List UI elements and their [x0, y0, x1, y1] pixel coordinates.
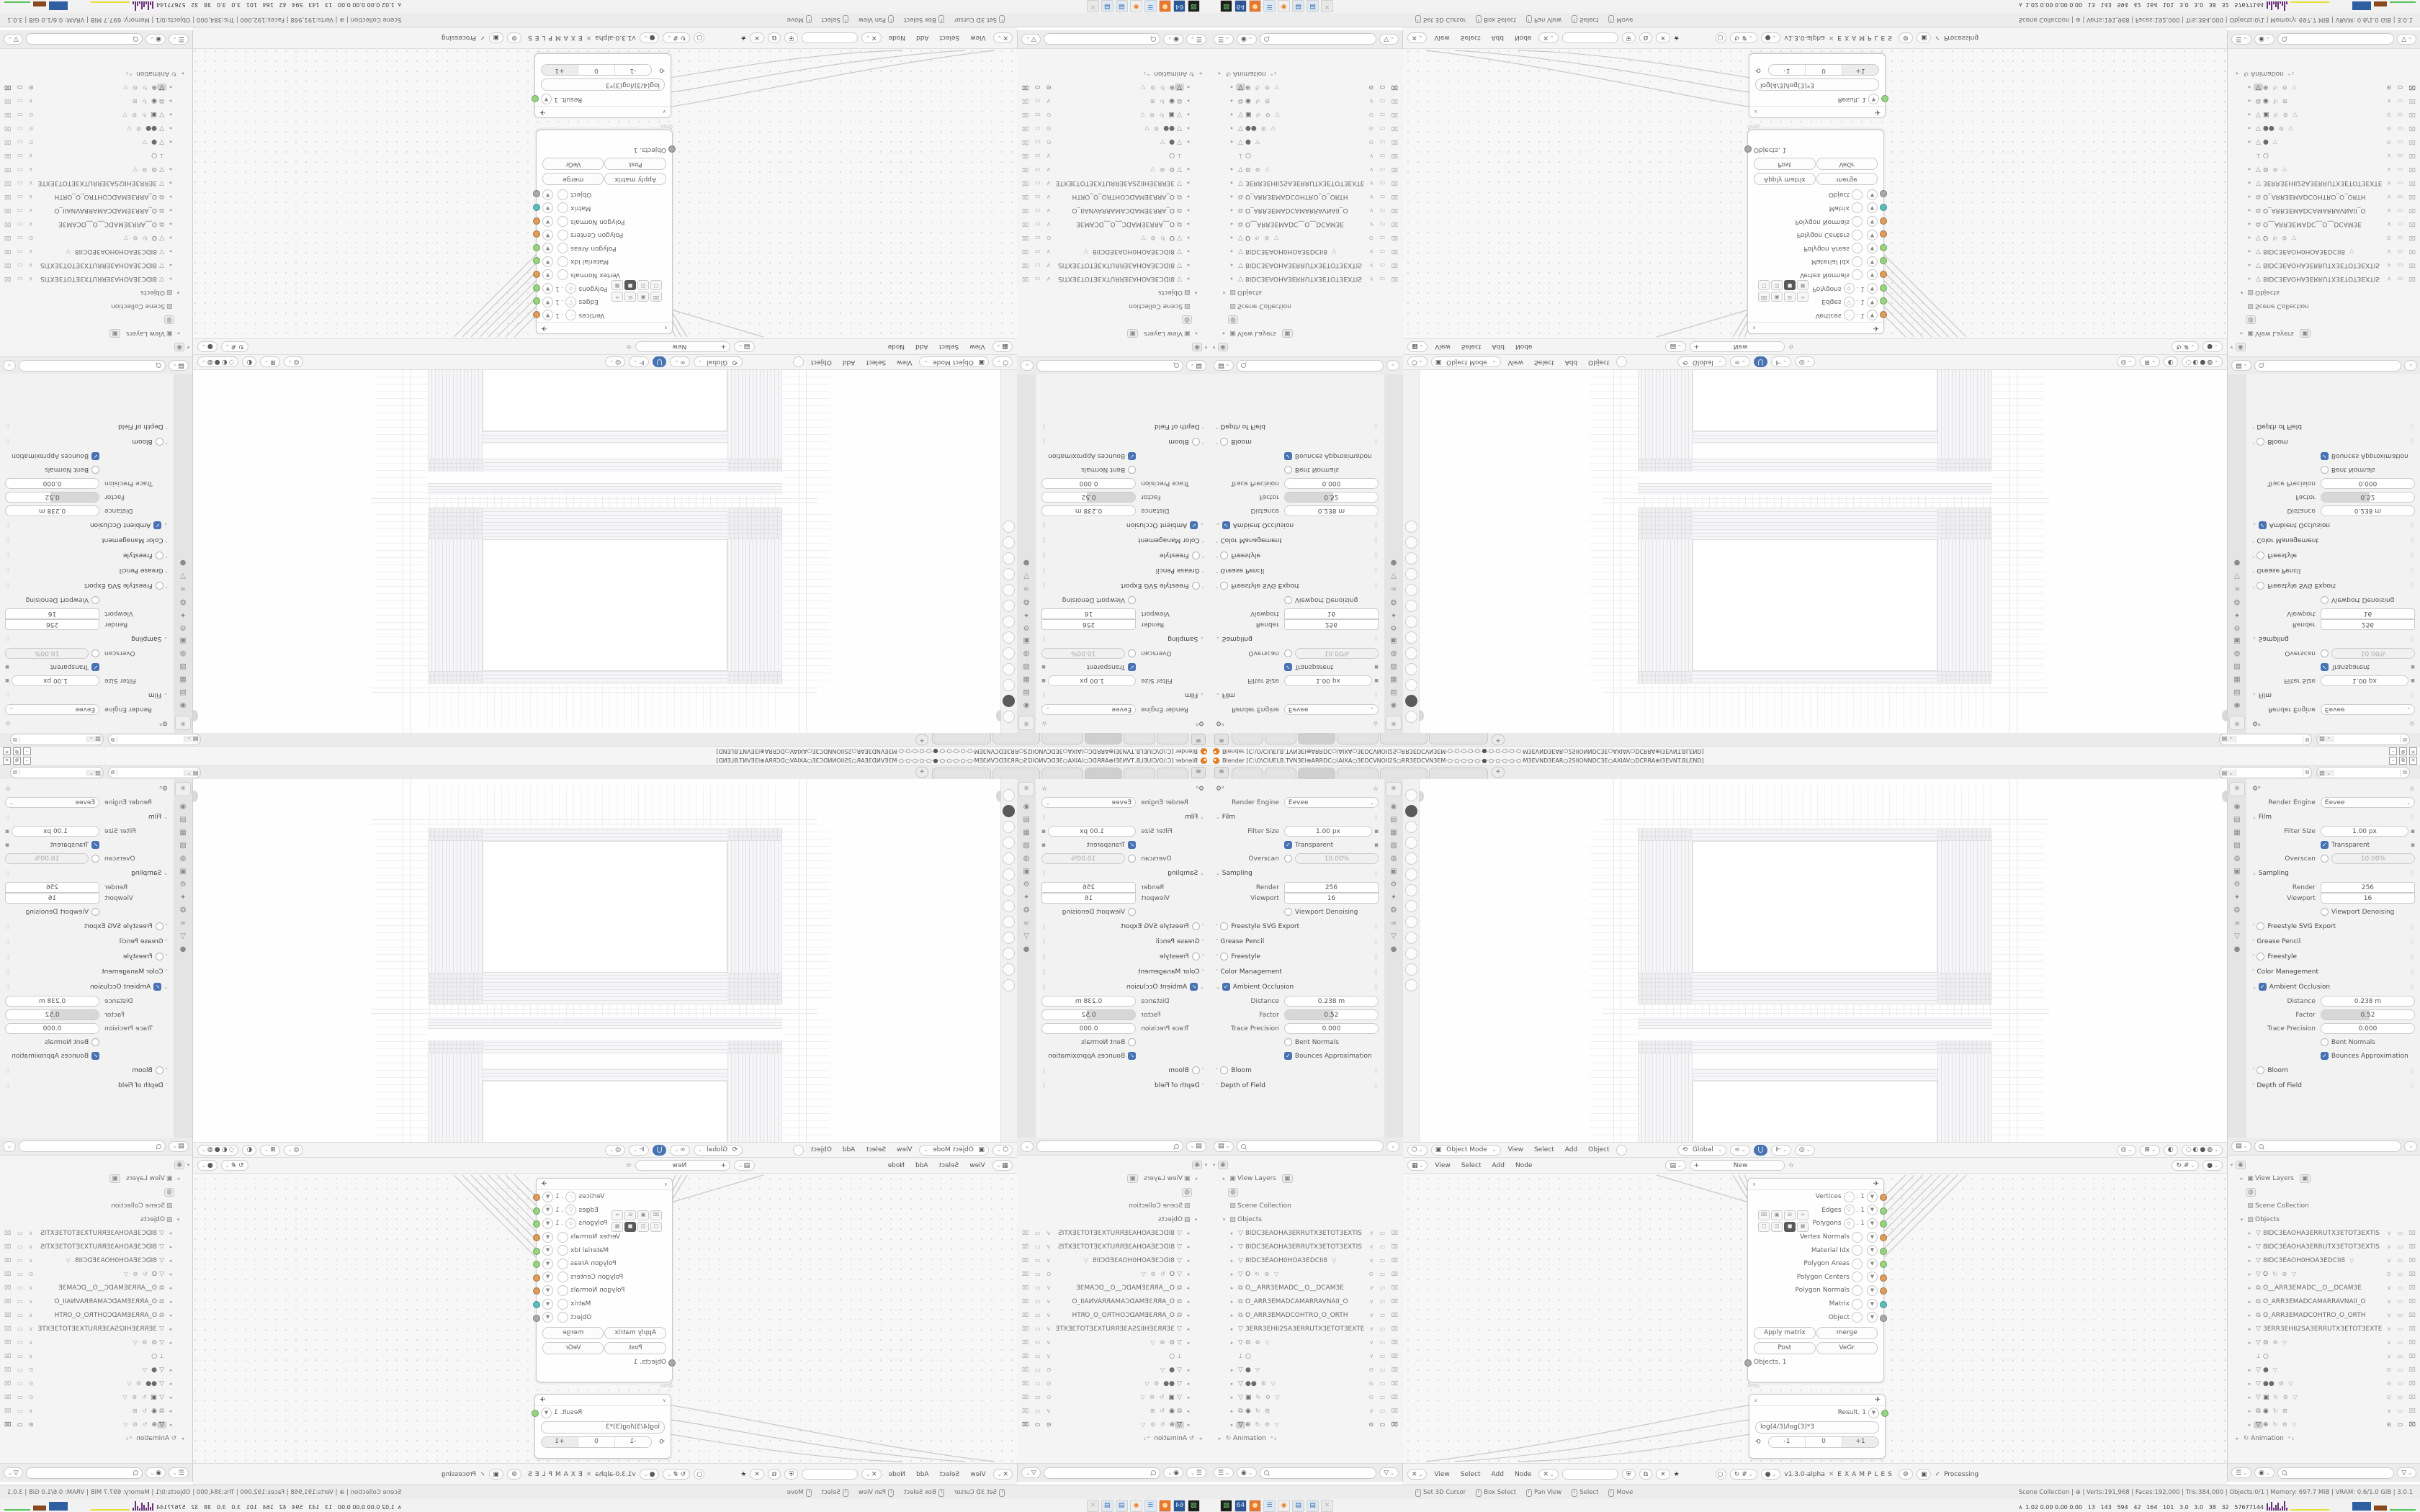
outliner-object-row[interactable]: ▸⧉O_ARR3EMADCOHTRO_O_ORTH∨ ▭ ⌧ [1210, 190, 1403, 204]
sampling-section[interactable]: Sampling [1222, 636, 1252, 643]
node-output-socket[interactable]: Polygon Centers▼ [537, 228, 672, 242]
tool-add-cube[interactable] [1003, 568, 1016, 580]
sampling-section[interactable]: Sampling [1168, 870, 1198, 877]
outliner-object-row[interactable]: ▸▽3ERR3EHII2SA3ERRUTX3ETOT3EXTE∨ ▭ ⌧ [1210, 1322, 1403, 1336]
socket-dropdown[interactable]: ▼ [542, 1218, 553, 1229]
world-row[interactable]: ◍ [2228, 313, 2420, 327]
freestyle-svg-toggle[interactable] [1192, 922, 1200, 930]
overlay-dropdown[interactable]: ●⌄ [197, 1160, 218, 1171]
circle-toggle[interactable]: ○ [694, 32, 704, 43]
properties-tab-icon[interactable]: ▤ [176, 685, 190, 698]
new-tree-button[interactable]: +New [1690, 341, 1785, 352]
workspace-tab[interactable] [992, 733, 1040, 744]
properties-tab-icon[interactable]: ✦ [1019, 608, 1034, 621]
bent-normals-toggle[interactable] [1128, 1038, 1136, 1046]
filter-size-field[interactable]: 1.00 px [2321, 675, 2408, 686]
maximize-button[interactable]: ⧉ [2399, 757, 2407, 765]
workspace-tab[interactable] [1429, 733, 1488, 744]
viewport-denoising-toggle[interactable] [91, 908, 99, 916]
freestyle-svg-toggle[interactable] [2257, 582, 2264, 590]
outliner-search-input[interactable] [1036, 1140, 1183, 1152]
view-layers-row[interactable]: ▸▣View Layers▣ [2228, 1171, 2420, 1185]
tool-active[interactable] [1405, 695, 1417, 707]
tree-name-field[interactable] [1562, 1469, 1618, 1480]
outliner-object-row[interactable]: ▸▽3ERR3EHII2SA3ERRUTX3ETOT3EXTE∨ ▭ ⌧ [1017, 1322, 1210, 1336]
filter-type-dropdown[interactable]: ◉⌄ [2254, 34, 2275, 45]
bloom-section[interactable]: Bloom [2267, 1067, 2287, 1074]
tree-name-field[interactable] [1562, 32, 1618, 43]
film-section[interactable]: Film [1185, 692, 1198, 699]
properties-tab-icon[interactable]: ∞ [1019, 582, 1034, 595]
vegr-button[interactable]: VeGr [542, 1342, 604, 1354]
ao-checkbox[interactable]: ✓ [153, 521, 161, 529]
viewlayer-selector[interactable]: ▧ ⌄ ⧉ [10, 734, 104, 745]
taskbar-app-icon[interactable]: ◉ [1278, 1, 1290, 13]
scene-selector[interactable]: ▤ ⌄ ⧉ [108, 734, 202, 745]
film-section[interactable]: Film [1222, 814, 1235, 821]
menu-add[interactable]: Add [1488, 1471, 1507, 1478]
viewport-samples-field[interactable]: 16 [1041, 893, 1136, 904]
examples-menu[interactable]: EXAMPLES [525, 1471, 583, 1478]
pin-icon[interactable]: ☆ [626, 1162, 632, 1169]
tool-rotate[interactable] [1003, 647, 1016, 660]
snap-node-dropdown[interactable]: ↻ #⌄ [2172, 341, 2199, 352]
outliner-search-input[interactable] [1237, 360, 1384, 372]
outliner-object-row[interactable]: ▸⧉◉↻ ⊞∨ ▭ ⌧ [1210, 94, 1403, 108]
socket-dropdown[interactable]: ▼ [542, 202, 553, 213]
outliner-object-row[interactable]: ▸▽3ERR3EHII2SA3ERRUTX3ETOT3EXTE∨ ▭ ⌧ [1017, 176, 1210, 190]
outliner-object-row[interactable]: ▸⧉◉↻ ⊞∨ ▭ ⌧ [1017, 1404, 1210, 1418]
menu-add[interactable]: Add [1489, 1162, 1508, 1169]
ao-trace-precision-field[interactable]: 0.000 [1041, 1023, 1136, 1034]
menu-add[interactable]: Add [912, 343, 931, 351]
workspace-tab[interactable] [1265, 768, 1296, 779]
socket-dropdown[interactable]: ▼ [542, 1312, 553, 1323]
workspace-tab-active[interactable] [1298, 768, 1335, 779]
node-output-socket[interactable]: Result. 1▼ [1749, 92, 1885, 106]
menu-add[interactable]: Add [1488, 35, 1507, 42]
socket-dropdown[interactable]: ▼ [542, 256, 553, 267]
sampling-section[interactable]: Sampling [1222, 870, 1252, 877]
step-buttons[interactable]: -10+1 [541, 1436, 652, 1448]
node-output-socket[interactable]: Polygon Areas▼ [1748, 1257, 1883, 1271]
render-engine-dropdown[interactable]: Eevee⌄ [2321, 797, 2415, 808]
tree-type-dropdown[interactable]: ▤⌄ [1665, 1160, 1685, 1171]
outliner-object-row[interactable]: ▸⧉O_ARR3EMADCAMARRAVNAII_O∨ ▭ ⌧ [2228, 204, 2420, 217]
outliner-object-row[interactable]: ▸▽⊕↻ ⚙ ▽⊙ ▭ ⌧ [0, 1418, 192, 1431]
workspace-tab[interactable] [1157, 733, 1188, 744]
tool-rotate[interactable] [1405, 852, 1417, 865]
ao-factor-slider[interactable]: 0.52 [1041, 492, 1136, 503]
overscan-field[interactable]: 10.00% [1295, 853, 1379, 864]
workspace-tab-active[interactable] [1085, 768, 1122, 779]
mode-dropdown[interactable]: ▣ Object Mode ⌄ [919, 357, 989, 368]
taskbar-app-icon[interactable]: ☰ [1263, 1500, 1276, 1512]
properties-tab-icon[interactable]: ❂ [1019, 904, 1034, 917]
menu-add[interactable]: Add [1561, 1146, 1581, 1153]
properties-tab-icon[interactable]: ● [1019, 556, 1034, 569]
properties-tab-icon[interactable]: ▽ [1019, 569, 1034, 582]
close-button[interactable]: ✕ [2409, 757, 2417, 765]
properties-tab-icon[interactable]: ✦ [2230, 608, 2244, 621]
filter-size-field[interactable]: 1.00 px [1284, 826, 1372, 837]
ao-factor-slider[interactable]: 0.52 [2321, 492, 2415, 503]
tree-icon-dropdown[interactable]: ✕⌄ [1407, 1469, 1427, 1480]
grease-pencil-section[interactable]: Grease Pencil [1220, 567, 1264, 575]
taskbar-app-icon[interactable]: ▤ [1307, 1, 1319, 13]
socket-dropdown[interactable]: ▼ [1867, 283, 1878, 294]
properties-tab-icon[interactable]: ◉ [1386, 698, 1401, 711]
taskbar-app-icon[interactable]: ▤ [1101, 1500, 1113, 1512]
overscan-field[interactable]: 10.00% [5, 648, 89, 659]
properties-tab-icon[interactable]: ⚙ [1019, 621, 1034, 634]
editor-type-icon[interactable]: ⚙ᵒ [2252, 786, 2261, 793]
properties-tab-icon[interactable]: ❂ [2230, 595, 2244, 608]
properties-tab-icon[interactable]: ▤ [1386, 685, 1401, 698]
tool-transform[interactable] [1405, 884, 1417, 896]
filter-type-dropdown[interactable]: ◉⌄ [1163, 34, 1183, 45]
taskbar-app-icon[interactable]: ● [1159, 1, 1171, 13]
properties-tab-icon[interactable]: ▣ [2230, 865, 2244, 878]
tool-move[interactable] [1003, 837, 1016, 849]
freestyle-svg-section[interactable]: Freestyle SVG Export [2267, 582, 2336, 590]
tool-extra2[interactable] [1003, 963, 1016, 976]
properties-tab-icon[interactable]: ● [2230, 556, 2244, 569]
outliner-filter-dropdown[interactable]: ⌄ [1386, 1141, 1399, 1152]
viewport-samples-field[interactable]: 16 [1284, 608, 1379, 619]
ao-distance-field[interactable]: 0.238 m [5, 505, 99, 516]
properties-tab-icon[interactable]: ✦ [176, 891, 190, 904]
socket-dropdown[interactable]: ▼ [1867, 216, 1878, 227]
properties-tab-icon[interactable]: ▽ [1386, 930, 1401, 943]
menu-select[interactable]: Select [935, 343, 962, 351]
viewport-denoising-toggle[interactable] [1128, 908, 1136, 916]
properties-tab-icon[interactable]: ▤ [176, 814, 190, 827]
view-layers-row[interactable]: ▸▣View Layers▣ [0, 327, 192, 341]
outliner-filter-dropdown[interactable]: ⌄ [1021, 1141, 1034, 1152]
properties-tab-icon[interactable]: ▦ [176, 672, 190, 685]
taskbar-app-icon[interactable]: 64 [1173, 1, 1186, 13]
viewlayer-selector[interactable]: ▧ ⌄ ⧉ [10, 767, 104, 778]
node-output-socket[interactable]: Matrix▼ [537, 1297, 672, 1311]
bloom-section[interactable]: Bloom [2267, 438, 2287, 446]
outliner-display-mode-dropdown[interactable]: ▤⌄ [1186, 361, 1206, 372]
formula-node[interactable]: ∨✈ Result. 1▼ log(4/3)/log(3)*3 ⟲ -10+1 [534, 53, 671, 118]
search-input[interactable] [26, 1467, 143, 1479]
display-mode-dropdown[interactable]: ☰⌄ [1186, 1467, 1206, 1478]
tool-tab-icon[interactable]: ✳ [1018, 716, 1034, 730]
freestyle-section[interactable]: Freestyle [123, 953, 153, 960]
node-option-button[interactable]: ⊟ [624, 292, 636, 302]
world-row[interactable]: ◍ [1017, 313, 1210, 327]
socket-dropdown[interactable]: ▼ [1867, 189, 1878, 200]
unlink-tree-button[interactable]: ✕ [750, 32, 764, 43]
sidebar-region-handle[interactable] [2222, 791, 2227, 802]
objects-data-node[interactable]: ∨✈ Vertices∴. 1▼ Edges▽. 1▼ Polygons◇. 1… [536, 130, 673, 334]
outliner-object-row[interactable]: ▸▽⊙⚙ ▽∨ ▭ ⌧ [1210, 163, 1403, 176]
socket-dropdown[interactable]: ▼ [1867, 1245, 1878, 1256]
objects-collection-row[interactable]: ▾▧Objects [1017, 286, 1210, 300]
step-buttons[interactable]: -10+1 [541, 64, 652, 76]
filter-size-field[interactable]: 1.00 px [1048, 826, 1136, 837]
sampling-section[interactable]: Sampling [2259, 636, 2289, 643]
film-section[interactable]: Film [148, 814, 161, 821]
scene-collection-row[interactable]: ▧Scene Collection [1017, 1199, 1210, 1212]
properties-tab-icon[interactable]: ⚙ [1019, 878, 1034, 891]
merge-button[interactable]: merge [542, 1327, 604, 1339]
ao-checkbox[interactable]: ✓ [2259, 521, 2267, 529]
properties-tab-icon[interactable]: ⚙ [176, 878, 190, 891]
node-option-button[interactable]: ⌧ [1758, 1210, 1770, 1220]
ambient-occlusion-section[interactable]: Ambient Occlusion [2269, 984, 2330, 991]
properties-tab-icon[interactable]: ◉ [2230, 698, 2244, 711]
color-management-section[interactable]: Color Management [1138, 968, 1200, 976]
menu-select[interactable]: Select [862, 1146, 889, 1153]
step-buttons[interactable]: -10+1 [1768, 64, 1879, 76]
taskbar-app-icon[interactable]: ◉ [1130, 1500, 1142, 1512]
menu-view[interactable]: View [967, 1471, 989, 1478]
viewlayer-selector[interactable]: ▧ ⌄ ⧉ [2316, 734, 2410, 745]
editor-type-icon[interactable]: ⚙ᵒ [1216, 786, 1224, 793]
outliner-search-input[interactable] [2254, 360, 2401, 372]
properties-tab-icon[interactable]: ▤ [2230, 814, 2244, 827]
viewport-3d[interactable] [193, 779, 1017, 1142]
outliner-object-row[interactable]: ▸▽8IDC3EAOHA3ERRUTX3ETOT3EXTIS∨ ▭ ⌧ [1210, 272, 1403, 286]
outliner-object-row[interactable]: ▸▽⊙⚙ ▽∨ ▭ ⌧ [0, 163, 192, 176]
pin-icon[interactable]: ☆ [1041, 719, 1047, 726]
taskbar-app-icon[interactable]: ▤ [1292, 1500, 1304, 1512]
viewport-denoising-toggle[interactable] [2321, 908, 2329, 916]
node-output-socket[interactable]: Polygon Areas▼ [1748, 241, 1883, 255]
sampling-section[interactable]: Sampling [1168, 636, 1198, 643]
overscan-toggle[interactable] [1284, 649, 1292, 657]
editor-type-button[interactable]: ⬡⌄ [992, 357, 1013, 368]
collapse-node-icon[interactable]: ∨ [664, 325, 668, 331]
outliner-object-row[interactable]: ▸▽▣↻ ⚙ ▽⊙ ▭ ⌧ [1210, 1390, 1403, 1404]
outliner-object-row[interactable]: ▸▽●●⚙ ▽⊙ ▭ ⌧ [1017, 1377, 1210, 1390]
freestyle-section[interactable]: Freestyle [1231, 552, 1260, 559]
overlay-dropdown[interactable]: ●⌄ [640, 32, 660, 43]
node-output-socket[interactable]: Matrix▼ [1748, 1297, 1883, 1311]
outliner-filter-dropdown[interactable]: ⌄ [2404, 361, 2417, 372]
bent-normals-toggle[interactable] [91, 1038, 99, 1046]
tool-extra1[interactable] [1405, 552, 1417, 564]
bounces-approx-checkbox[interactable]: ✓ [1128, 452, 1136, 460]
tool-select-box[interactable] [1003, 711, 1016, 723]
scene-selector[interactable]: ▤ ⌄ ⧉ [2219, 734, 2313, 745]
copy-viewlayer-icon[interactable]: ⧉ [11, 736, 20, 743]
new-tree-button[interactable]: +New [635, 1160, 730, 1171]
ambient-occlusion-section[interactable]: Ambient Occlusion [90, 522, 151, 529]
node-output-socket[interactable]: Vertices∴. 1▼ [537, 1190, 672, 1204]
transform-orientation-dropdown[interactable]: ⟲ Global ⌄ [1677, 1145, 1726, 1156]
ao-distance-field[interactable]: 0.238 m [2321, 505, 2415, 516]
socket-dropdown[interactable]: ▼ [1867, 243, 1878, 253]
properties-tab-icon[interactable]: ▧ [1019, 660, 1034, 672]
scene-collection-row[interactable]: ▧Scene Collection [2228, 1199, 2420, 1212]
view-layers-row[interactable]: ▸▣View Layers▣ [0, 1171, 192, 1185]
properties-tab-icon[interactable]: ▦ [1386, 672, 1401, 685]
overscan-toggle[interactable] [1284, 855, 1292, 863]
workspace-tab[interactable] [992, 768, 1040, 779]
filter-type-dropdown[interactable]: ◉⌄ [1237, 34, 1257, 45]
menu-object[interactable]: Object [1585, 1146, 1613, 1153]
freestyle-section[interactable]: Freestyle [123, 552, 153, 559]
taskbar-app-icon[interactable]: 64 [1173, 1500, 1186, 1512]
freestyle-svg-toggle[interactable] [156, 922, 163, 930]
outliner-object-row[interactable]: ▸▽▣↻ ⚙ ▽⊙ ▭ ⌧ [1017, 1390, 1210, 1404]
tool-cursor[interactable] [1405, 821, 1417, 833]
close-button[interactable]: ✕ [3, 747, 11, 755]
animation-row[interactable]: ▸↻Animation⁴₂ [1210, 1431, 1403, 1445]
freestyle-svg-section[interactable]: Freestyle SVG Export [1231, 582, 1299, 590]
ao-checkbox[interactable]: ✓ [1222, 983, 1230, 991]
toolbar-region-handle[interactable] [1419, 791, 1424, 802]
scene-selector[interactable]: ▤ ⌄ ⧉ [2219, 767, 2313, 778]
menu-add[interactable]: Add [839, 359, 859, 366]
outliner-object-row[interactable]: ▸▽⊙⚙ ▽∨ ▭ ⌧ [1210, 1336, 1403, 1349]
outliner-display-mode-dropdown[interactable]: ▤⌄ [169, 1141, 189, 1152]
tool-active[interactable] [1003, 695, 1016, 707]
properties-tab-icon[interactable]: ▧ [1386, 660, 1401, 672]
pin-icon[interactable]: ☆ [1373, 719, 1379, 726]
snap-dropdown[interactable]: ↻ #⌄ [663, 1469, 690, 1480]
socket-dropdown[interactable]: ▼ [1867, 1205, 1878, 1215]
node-option-button[interactable]: ◫ [637, 280, 649, 290]
tree-selector-icon[interactable]: ✕⌄ [1538, 1469, 1558, 1480]
ao-factor-slider[interactable]: 0.52 [1284, 1009, 1379, 1020]
viewport-denoising-toggle[interactable] [1128, 596, 1136, 604]
outliner-object-row[interactable]: ▸▽8IDC3EAOHA3ERRUTX3ETOT3EXTIS∨ ▭ ⌧ [1017, 258, 1210, 272]
outliner-object-row[interactable]: ⟘○∨ ▭ ⌧ [0, 1349, 192, 1363]
freestyle-toggle[interactable] [1192, 552, 1200, 559]
outliner-filter-dropdown[interactable]: ⌄ [3, 361, 16, 372]
sidebar-region-handle[interactable] [2222, 710, 2227, 721]
menu-select[interactable]: Select [1531, 1146, 1558, 1153]
vegr-button[interactable]: VeGr [1816, 1342, 1878, 1354]
node-option-button[interactable]: ■ [1784, 1222, 1796, 1232]
menu-node[interactable]: Node [884, 1162, 909, 1169]
socket-dropdown[interactable]: ▼ [542, 1259, 553, 1269]
node-output-socket[interactable]: Material Idx▼ [537, 1243, 672, 1257]
overscan-toggle[interactable] [2321, 649, 2329, 657]
node-option-button[interactable]: ⊟ [1784, 1210, 1796, 1220]
tool-cursor[interactable] [1003, 679, 1016, 691]
node-output-socket[interactable]: Polygon Normals▼ [537, 215, 672, 228]
render-samples-field[interactable]: 256 [5, 882, 99, 893]
sverchok-settings-button[interactable]: ⚙ [507, 1469, 521, 1480]
outliner-object-row[interactable]: ▸▽8IDC3EAOH0HOA3EDCII8▽∨ ▭ ⌧ [1017, 1254, 1210, 1267]
outliner-object-row[interactable]: ▸▽●▽⊙ ▭ ⌧ [1017, 135, 1210, 149]
shading-mode-group[interactable]: ◌◐●◍⌄ [2182, 1145, 2223, 1156]
world-row[interactable]: ◍ [2228, 1185, 2420, 1199]
viewlayer-icon[interactable]: ◉ [174, 1161, 184, 1169]
node-option-button[interactable]: ▦ [1797, 1222, 1809, 1232]
sverchok-panel-button[interactable]: ▣ [1917, 1469, 1932, 1480]
outliner-display-mode-dropdown[interactable]: ▤⌄ [169, 361, 189, 372]
animation-row[interactable]: ▸↻Animation⁴₂ [0, 1431, 192, 1445]
freestyle-toggle[interactable] [1220, 552, 1228, 559]
socket-dropdown[interactable]: ▼ [542, 1272, 553, 1282]
outliner-object-row[interactable]: ▸⧉O_ARR3EMADCOHTRO_O_ORTH∨ ▭ ⌧ [0, 1308, 192, 1322]
collapse-node-icon[interactable]: ∨ [1754, 1398, 1757, 1403]
workspace-tab[interactable] [1265, 733, 1296, 744]
wheel-icon[interactable]: ⟲ [655, 65, 665, 75]
view-layers-row[interactable]: ▸▣View Layers▣ [2228, 327, 2420, 341]
xray-toggle[interactable]: ◐ [242, 357, 256, 368]
ao-factor-slider[interactable]: 0.52 [1284, 492, 1379, 503]
properties-tab-icon[interactable]: ✦ [1386, 891, 1401, 904]
node-option-button[interactable]: ∞ [1797, 292, 1809, 302]
bloom-section[interactable]: Bloom [132, 438, 152, 446]
freestyle-toggle[interactable] [2257, 552, 2264, 559]
viewlayer-name-field[interactable] [20, 734, 86, 744]
node-output-socket[interactable]: Vertex Normals▼ [1748, 1230, 1883, 1244]
properties-tab-icon[interactable]: ▣ [176, 865, 190, 878]
socket-dropdown[interactable]: ▼ [542, 1232, 553, 1243]
workspace-tab[interactable] [1041, 733, 1083, 744]
outliner-object-row[interactable]: ▸▽●●⚙ ▽⊙ ▭ ⌧ [0, 1377, 192, 1390]
fake-user-button[interactable]: ⛨ [1622, 32, 1636, 43]
overscan-field[interactable]: 10.00% [1041, 648, 1125, 659]
tool-tab-icon[interactable]: ✳ [175, 716, 191, 730]
ao-trace-precision-field[interactable]: 0.000 [2321, 478, 2415, 489]
ambient-occlusion-section[interactable]: Ambient Occlusion [1233, 984, 1294, 991]
node-output-socket[interactable]: Object▼ [1748, 188, 1883, 202]
tool-active[interactable] [1405, 805, 1417, 817]
post-button[interactable]: Post [1754, 158, 1816, 170]
copy-scene-icon[interactable]: ⧉ [109, 769, 118, 776]
tool-add-cube[interactable] [1003, 932, 1016, 944]
overscan-field[interactable]: 10.00% [2331, 853, 2415, 864]
outliner-object-row[interactable]: ▸⧉O_ARR3EMADCOHTRO_O_ORTH∨ ▭ ⌧ [0, 190, 192, 204]
display-mode-dropdown[interactable]: ☰⌄ [1214, 1467, 1234, 1478]
copy-tree-button[interactable]: ⧉ [768, 32, 781, 43]
taskbar-app-icon[interactable]: ☰ [1144, 1, 1157, 13]
properties-tab-icon[interactable]: ⚙ [1386, 621, 1401, 634]
outliner-search-input[interactable] [19, 1140, 166, 1152]
socket-dropdown[interactable]: ▼ [542, 1245, 553, 1256]
editor-type-icon[interactable]: ⚙ᵒ [2252, 719, 2261, 726]
properties-tab-icon[interactable]: ❂ [1386, 904, 1401, 917]
node-output-socket[interactable]: Matrix▼ [1748, 202, 1883, 215]
outliner-object-row[interactable]: ▸⧉O__ARR3EMADC__O__DCAM3E∨ ▭ ⌧ [0, 217, 192, 231]
node-option-button[interactable]: □ [1758, 280, 1770, 290]
outliner-object-row[interactable]: ▸⧉O__ARR3EMADC__O__DCAM3E∨ ▭ ⌧ [2228, 1281, 2420, 1295]
render-engine-dropdown[interactable]: Eevee⌄ [1284, 704, 1379, 715]
tool-extra2[interactable] [1405, 963, 1417, 976]
pin-icon[interactable]: ☆ [1373, 786, 1379, 793]
properties-tab-icon[interactable]: ▣ [176, 634, 190, 647]
viewport-samples-field[interactable]: 16 [2321, 893, 2415, 904]
ao-distance-field[interactable]: 0.238 m [1041, 505, 1136, 516]
fake-user-button[interactable]: ⛨ [1622, 1469, 1636, 1480]
overlay-dropdown[interactable]: ●⌄ [1761, 32, 1781, 43]
objects-collection-row[interactable]: ▾▧Objects [1210, 1212, 1403, 1226]
node-option-button[interactable]: ■ [624, 1222, 636, 1232]
render-samples-field[interactable]: 256 [2321, 619, 2415, 630]
outliner-object-row[interactable]: ▸▽8IDC3EAOHA3ERRUTX3ETOT3EXTIS∨ ▭ ⌧ [0, 1226, 192, 1240]
maximize-button[interactable]: ⧉ [2399, 747, 2407, 755]
outliner-object-row[interactable]: ⟘○∨ ▭ ⌧ [1210, 1349, 1403, 1363]
render-samples-field[interactable]: 256 [5, 619, 99, 630]
scene-collection-row[interactable]: ▧Scene Collection [2228, 300, 2420, 313]
node-output-socket[interactable]: Polygon Areas▼ [537, 241, 672, 255]
tree-icon-dropdown[interactable]: ✕⌄ [993, 1469, 1013, 1480]
properties-tab-icon[interactable]: ▤ [1386, 814, 1401, 827]
vegr-button[interactable]: VeGr [1816, 158, 1878, 170]
freestyle-section[interactable]: Freestyle [2267, 953, 2297, 960]
